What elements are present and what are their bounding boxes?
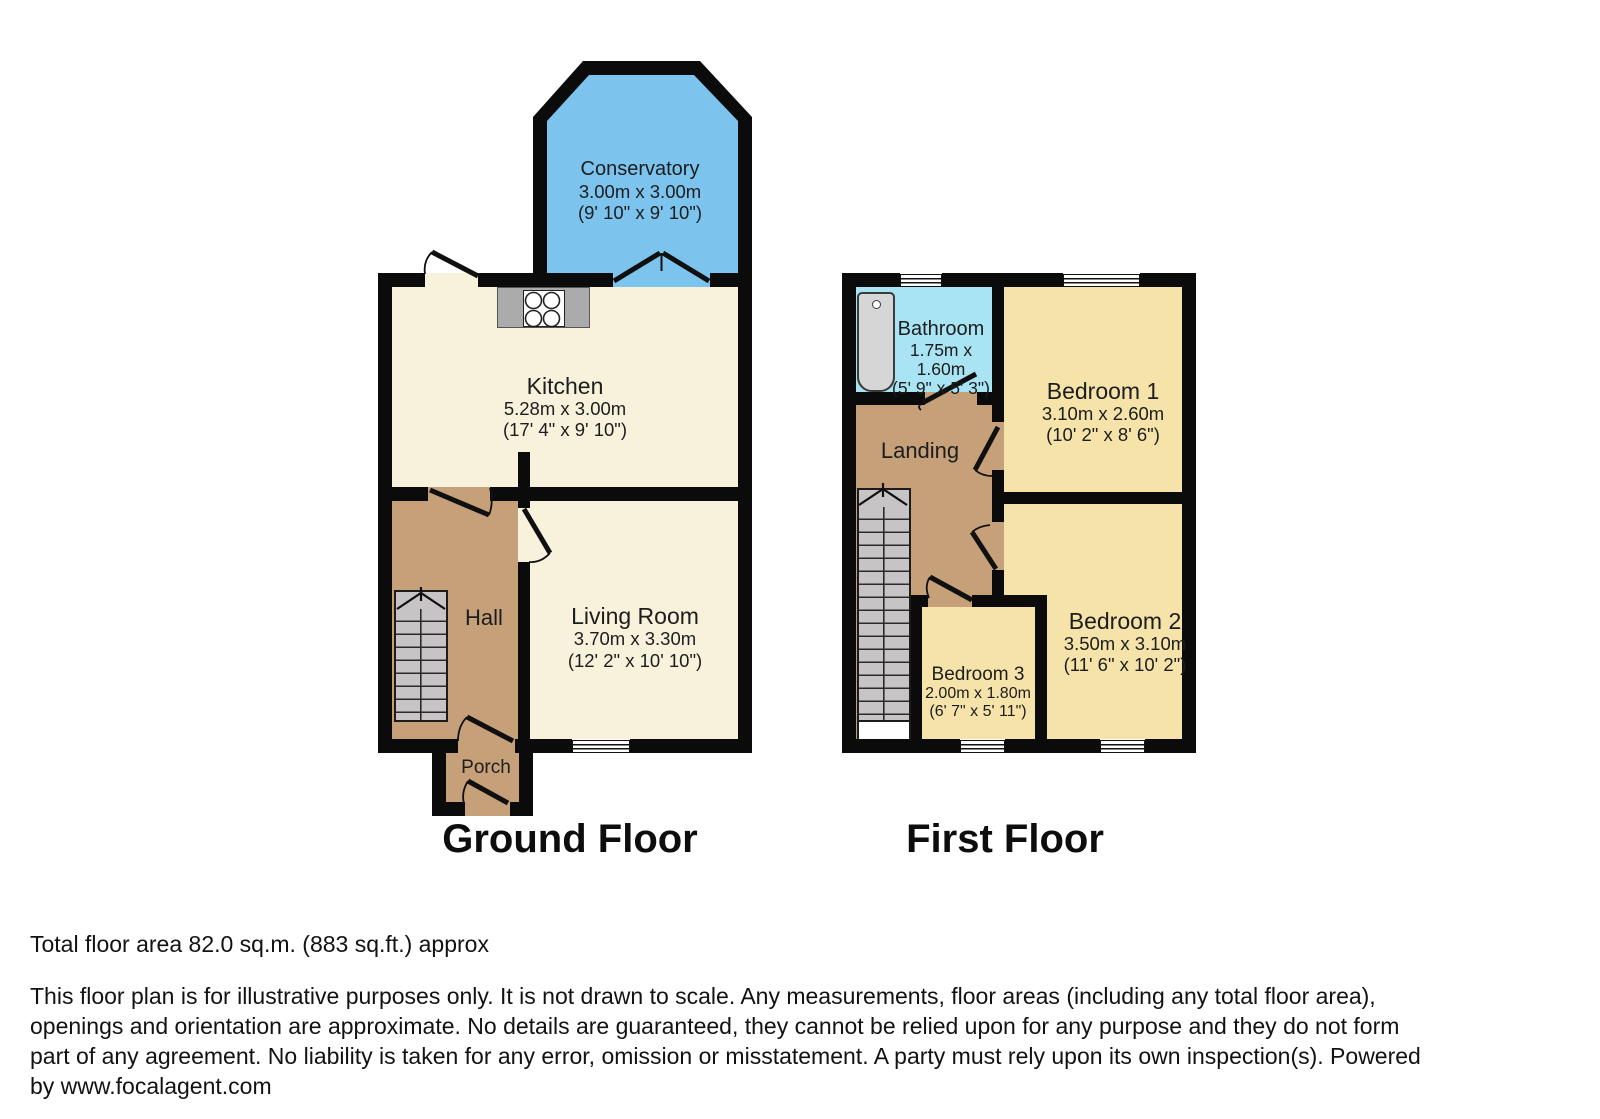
wall-kitchen-divider-segment: [392, 487, 428, 501]
wall-first-top-segment: [842, 273, 900, 287]
conservatory-door-opening: [613, 273, 710, 287]
kitchen-label: Kitchen 5.28m x 3.00m (17' 4" x 9' 10"): [503, 374, 627, 440]
disclaimer-line: This floor plan is for illustrative purp…: [30, 981, 1421, 1011]
bedroom3-door-opening: [928, 595, 972, 607]
room-name: Kitchen: [503, 374, 627, 398]
wall-first-bottom-segment: [842, 739, 960, 753]
bedroom2-door-opening: [992, 522, 1004, 570]
first-floor-title: First Floor: [906, 819, 1104, 859]
disclaimer-line: by www.focalagent.com: [30, 1071, 1421, 1101]
living-room-window: [572, 740, 630, 753]
wall-ground-right: [738, 273, 752, 753]
room-name: Bedroom 3: [925, 664, 1031, 685]
bathroom-window: [900, 274, 942, 287]
kitchen-back-door-opening: [425, 273, 478, 287]
disclaimer-line: openings and orientation are approximate…: [30, 1011, 1421, 1041]
wall-ground-bottom-segment: [515, 739, 572, 753]
room-name: Bedroom 1: [1042, 379, 1164, 403]
room-name: Living Room: [568, 604, 702, 628]
staircase-ground: [394, 590, 448, 722]
living-room-label: Living Room 3.70m x 3.30m (12' 2" x 10' …: [568, 604, 702, 672]
total-floor-area-text: Total floor area 82.0 sq.m. (883 sq.ft.)…: [30, 929, 489, 959]
wall-bedroom1-bedroom2-divider: [992, 492, 1182, 504]
bedroom1-window: [1063, 274, 1140, 287]
wall-kitchen-divider-segment: [490, 487, 738, 501]
room-dims-imperial: (11' 6" x 10' 2"): [1064, 654, 1187, 675]
room-dims-imperial: (10' 2" x 8' 6"): [1042, 424, 1164, 445]
bedroom2-window: [1100, 740, 1145, 753]
wall-first-top-segment: [942, 273, 1063, 287]
ground-floor-title: Ground Floor: [442, 819, 698, 859]
room-dims-metric: 3.00m x 3.00m: [578, 181, 702, 202]
room-dims-metric: 3.10m x 2.60m: [1042, 403, 1164, 424]
room-dims-metric-2: 1.60m: [892, 360, 990, 379]
hall-label: Hall: [465, 606, 503, 629]
disclaimer-line: part of any agreement. No liability is t…: [30, 1041, 1421, 1071]
room-dims-metric-1: 1.75m x: [892, 341, 990, 360]
room-dims-imperial: (6' 7" x 5' 11"): [925, 703, 1031, 721]
room-dims-imperial: (9' 10" x 9' 10"): [578, 202, 702, 223]
hall-kitchen-door-opening: [428, 487, 490, 501]
wall-bedroom3-left: [910, 595, 922, 739]
disclaimer-text: This floor plan is for illustrative purp…: [30, 981, 1421, 1101]
wall-kitchen-stub: [518, 452, 530, 487]
room-name: Bedroom 2: [1064, 609, 1187, 633]
wall-landing-bedrooms-segment: [992, 287, 1004, 422]
room-dims-metric: 2.00m x 1.80m: [925, 685, 1031, 703]
wall-first-bottom-segment: [1005, 739, 1100, 753]
cooktop-hob: [523, 290, 565, 327]
stair-treads: [859, 507, 909, 720]
wall-ground-top-segment: [378, 273, 425, 287]
room-dims-imperial: (12' 2" x 10' 10"): [568, 650, 702, 672]
wall-hall-living-segment: [518, 562, 530, 739]
landing-label: Landing: [881, 439, 959, 462]
room-dims-imperial: (5' 9" x 5' 3"): [892, 379, 990, 398]
bathtub-drain: [872, 300, 881, 309]
stair-treads: [396, 609, 446, 720]
wall-hall-living-segment: [518, 501, 530, 508]
bedroom1-door-opening: [992, 422, 1004, 470]
wall-ground-bottom-segment: [378, 739, 458, 753]
room-dims-metric: 3.70m x 3.30m: [568, 628, 702, 650]
wall-porch-bottom-segment: [432, 802, 465, 816]
door-arc: [425, 252, 432, 274]
wall-bedroom3-right: [1035, 595, 1047, 739]
staircase-first: [857, 488, 911, 722]
bedroom2-label: Bedroom 2 3.50m x 3.10m (11' 6" x 10' 2"…: [1064, 609, 1187, 675]
bathroom-label: Bathroom 1.75m x 1.60m (5' 9" x 5' 3"): [892, 318, 990, 398]
conservatory-label: Conservatory 3.00m x 3.00m (9' 10" x 9' …: [578, 158, 702, 223]
porch-label: Porch: [461, 758, 511, 778]
wall-first-right: [1182, 273, 1196, 753]
room-name: Bathroom: [892, 318, 990, 341]
hall-living-door-opening: [518, 508, 530, 562]
wall-porch-bottom-segment: [510, 802, 533, 816]
room-name: Conservatory: [578, 158, 702, 181]
room-dims-metric: 3.50m x 3.10m: [1064, 633, 1187, 654]
bathtub: [857, 292, 895, 392]
porch-entry-door-opening: [465, 802, 510, 816]
floorplan-canvas: Conservatory 3.00m x 3.00m (9' 10" x 9' …: [0, 0, 1600, 1119]
wall-first-bottom-segment: [1145, 739, 1196, 753]
wall-ground-left: [378, 273, 392, 753]
wall-ground-top-segment: [710, 273, 752, 287]
wall-ground-bottom-segment: [630, 739, 752, 753]
bedroom1-label: Bedroom 1 3.10m x 2.60m (10' 2" x 8' 6"): [1042, 379, 1164, 445]
wall-first-left: [842, 273, 856, 753]
bedroom3-label: Bedroom 3 2.00m x 1.80m (6' 7" x 5' 11"): [925, 664, 1031, 721]
wall-ground-top-segment: [478, 273, 613, 287]
room-dims-metric: 5.28m x 3.00m: [503, 398, 627, 419]
room-dims-imperial: (17' 4" x 9' 10"): [503, 419, 627, 440]
bedroom3-window: [960, 740, 1005, 753]
stairwell-void: [857, 722, 911, 739]
wall-first-top-segment: [1140, 273, 1196, 287]
